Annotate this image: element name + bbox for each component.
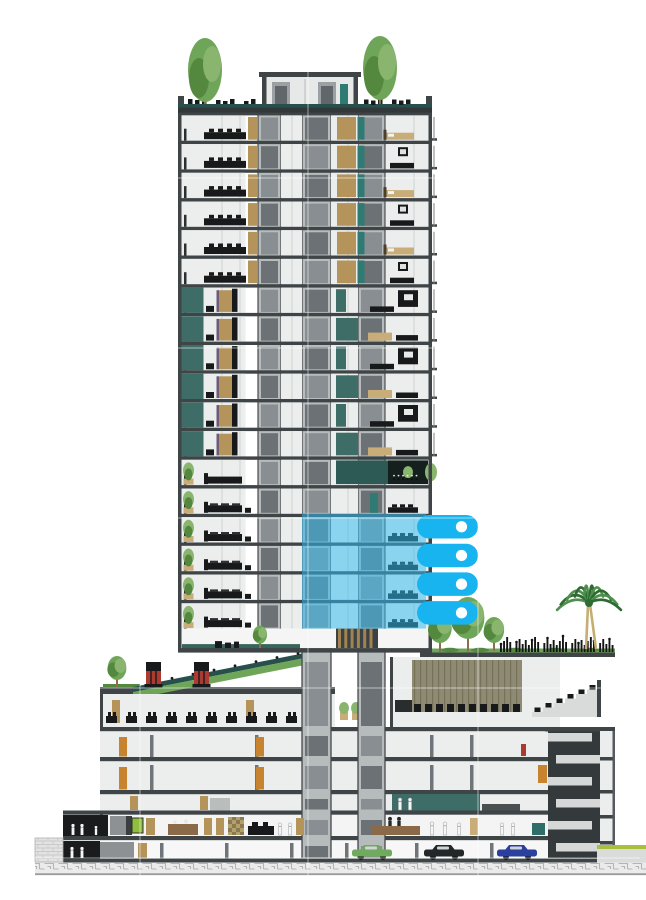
- ground-lobby: [63, 815, 545, 836]
- person-silhouette: [278, 823, 282, 835]
- person-silhouette: [95, 826, 98, 835]
- highlight-overlay: [302, 514, 426, 629]
- roof-furniture: [223, 101, 228, 104]
- amenity-dark-room: [336, 460, 437, 484]
- floor-slab: [63, 811, 615, 815]
- roof-furniture: [195, 100, 200, 104]
- section-scene: [0, 0, 646, 900]
- person-silhouette: [71, 824, 74, 835]
- roof-furniture: [399, 101, 404, 106]
- teal-facade-panel: [180, 431, 204, 456]
- floor-slab: [63, 859, 615, 863]
- teal-facade-panel: [180, 345, 204, 370]
- highlight-tab-dot: [456, 579, 467, 590]
- column: [345, 843, 349, 859]
- planter: [183, 462, 194, 484]
- tower-garden-level: [182, 626, 429, 649]
- podium-roof-terrace: [420, 648, 615, 657]
- person-silhouette: [80, 824, 83, 835]
- theater-seat: [436, 704, 443, 712]
- person-silhouette: [500, 823, 504, 835]
- ground-meander-strip: [35, 863, 646, 875]
- building-section-svg: [0, 0, 646, 900]
- teal-facade-panel: [180, 374, 204, 399]
- planter: [183, 549, 194, 571]
- highlight-tab-dot: [456, 607, 467, 618]
- column: [150, 765, 154, 790]
- person-silhouette: [511, 823, 515, 835]
- column: [490, 843, 494, 859]
- theater-seat: [414, 704, 421, 712]
- column: [290, 843, 294, 859]
- roof-furniture: [230, 99, 235, 104]
- theater-seat: [469, 704, 476, 712]
- highlight-tab-dot: [456, 521, 467, 532]
- roof-furniture: [406, 100, 411, 105]
- person-silhouette: [430, 822, 434, 835]
- rooftop-chimney-unit: [145, 662, 163, 688]
- penthouse: [259, 72, 361, 104]
- person-silhouette: [457, 823, 461, 835]
- person-silhouette: [70, 847, 73, 858]
- planter: [183, 491, 194, 513]
- roof-furniture: [364, 100, 369, 105]
- highlight-tab[interactable]: [417, 601, 478, 625]
- planter: [183, 520, 194, 542]
- red-cabinet: [521, 744, 526, 756]
- column: [225, 843, 229, 859]
- highlight-tab[interactable]: [417, 572, 478, 596]
- column: [415, 843, 419, 859]
- podium-right-wall: [600, 731, 615, 862]
- teal-facade-panel: [180, 316, 204, 341]
- orange-door: [538, 765, 547, 783]
- column: [160, 843, 164, 859]
- column: [430, 735, 434, 757]
- theater-seat: [491, 704, 498, 712]
- orange-door: [119, 767, 127, 790]
- column: [150, 735, 154, 757]
- planter: [183, 606, 194, 628]
- person-silhouette: [80, 847, 83, 858]
- orange-door: [256, 737, 264, 757]
- person-silhouette: [408, 798, 412, 810]
- highlight-tab[interactable]: [417, 544, 478, 568]
- theater-seat: [425, 704, 432, 712]
- theater-seat: [513, 704, 520, 712]
- roof-furniture: [188, 99, 193, 104]
- roof-furniture: [371, 101, 376, 106]
- teal-facade-panel: [180, 402, 204, 427]
- orange-door: [119, 737, 127, 757]
- column: [430, 765, 434, 790]
- terrace-planter: [339, 702, 349, 720]
- orange-door: [256, 767, 264, 790]
- teal-facade-panel: [180, 288, 204, 313]
- roof-furniture: [392, 100, 397, 105]
- theater-seat: [447, 704, 454, 712]
- roof-furniture: [216, 100, 221, 104]
- person-silhouette: [288, 823, 292, 835]
- theater-seat: [480, 704, 487, 712]
- floor-slab: [63, 836, 615, 840]
- highlight-tab-dot: [456, 550, 467, 561]
- architectural-section-figure: [0, 0, 646, 900]
- stair-ramp-tower: [545, 727, 603, 858]
- rooftop-chimney-unit: [193, 662, 211, 688]
- roof-furniture: [244, 101, 249, 104]
- street-deck-right: [597, 845, 646, 863]
- podium-lower-floors: [63, 727, 615, 863]
- planter: [183, 577, 194, 599]
- column: [470, 735, 474, 757]
- theater-seat: [502, 704, 509, 712]
- column: [470, 765, 474, 790]
- roof-furniture: [251, 99, 256, 104]
- person-silhouette: [443, 822, 447, 835]
- person-silhouette: [398, 798, 402, 810]
- theater-seat: [458, 704, 465, 712]
